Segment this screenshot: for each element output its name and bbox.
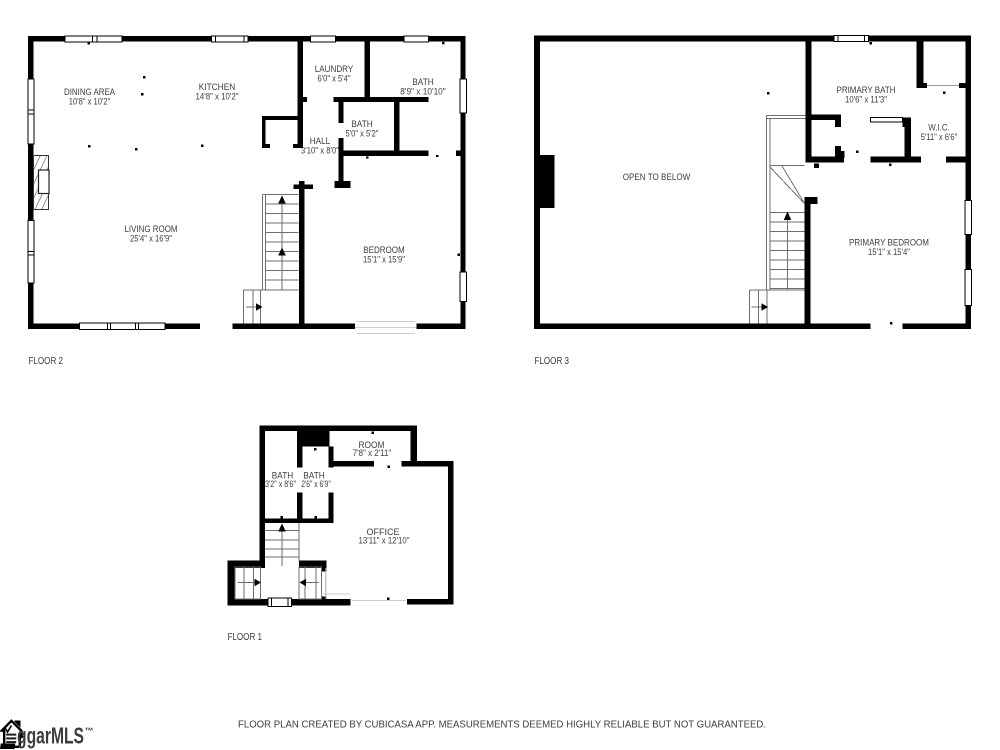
svg-text:FLOOR 2: FLOOR 2: [29, 356, 64, 367]
svg-text:BATH: BATH: [412, 77, 434, 87]
svg-text:13'11" x 12'10": 13'11" x 12'10": [359, 536, 410, 546]
svg-text:FLOOR PLAN CREATED BY CUBICASA: FLOOR PLAN CREATED BY CUBICASA APP. MEAS…: [238, 720, 766, 731]
svg-text:25'4" x 16'9": 25'4" x 16'9": [130, 234, 172, 244]
svg-text:10'6" x 11'3": 10'6" x 11'3": [845, 95, 887, 105]
svg-text:OPEN TO BELOW: OPEN TO BELOW: [623, 172, 691, 182]
svg-text:6'0" x 5'4": 6'0" x 5'4": [318, 74, 351, 84]
svg-text:W.I.C.: W.I.C.: [928, 123, 950, 133]
svg-text:BEDROOM: BEDROOM: [363, 245, 405, 255]
svg-text:3'2" x 8'6": 3'2" x 8'6": [265, 479, 296, 489]
svg-text:FLOOR 3: FLOOR 3: [535, 356, 570, 367]
svg-text:DINING AREA: DINING AREA: [64, 87, 115, 97]
svg-text:10'8" x 10'2": 10'8" x 10'2": [69, 97, 111, 107]
svg-text:FLOOR 1: FLOOR 1: [228, 632, 263, 643]
svg-text:7'8" x 2'11": 7'8" x 2'11": [353, 448, 392, 458]
svg-text:BATH: BATH: [351, 119, 373, 129]
svg-text:5'0" x 5'2": 5'0" x 5'2": [346, 129, 379, 139]
svg-text:15'1" x 15'9": 15'1" x 15'9": [363, 255, 405, 265]
svg-text:LIVING ROOM: LIVING ROOM: [125, 224, 178, 234]
svg-text:™: ™: [85, 726, 94, 736]
svg-text:2'6" x 6'9": 2'6" x 6'9": [301, 479, 331, 489]
svg-text:14'8" x 10'2": 14'8" x 10'2": [196, 92, 239, 102]
svg-text:PRIMARY BATH: PRIMARY BATH: [837, 85, 896, 95]
svg-text:LAUNDRY: LAUNDRY: [315, 64, 354, 74]
svg-text:PRIMARY BEDROOM: PRIMARY BEDROOM: [849, 238, 929, 248]
svg-text:KITCHEN: KITCHEN: [199, 82, 236, 92]
svg-text:HALL: HALL: [310, 136, 331, 146]
svg-text:5'11" x 6'6": 5'11" x 6'6": [921, 132, 958, 142]
svg-text:8'9" x 10'10": 8'9" x 10'10": [400, 87, 446, 97]
svg-text:15'1" x 15'4": 15'1" x 15'4": [868, 247, 910, 257]
svg-text:ggarMLS: ggarMLS: [17, 723, 84, 749]
svg-text:3'10" x 8'0": 3'10" x 8'0": [301, 146, 339, 156]
